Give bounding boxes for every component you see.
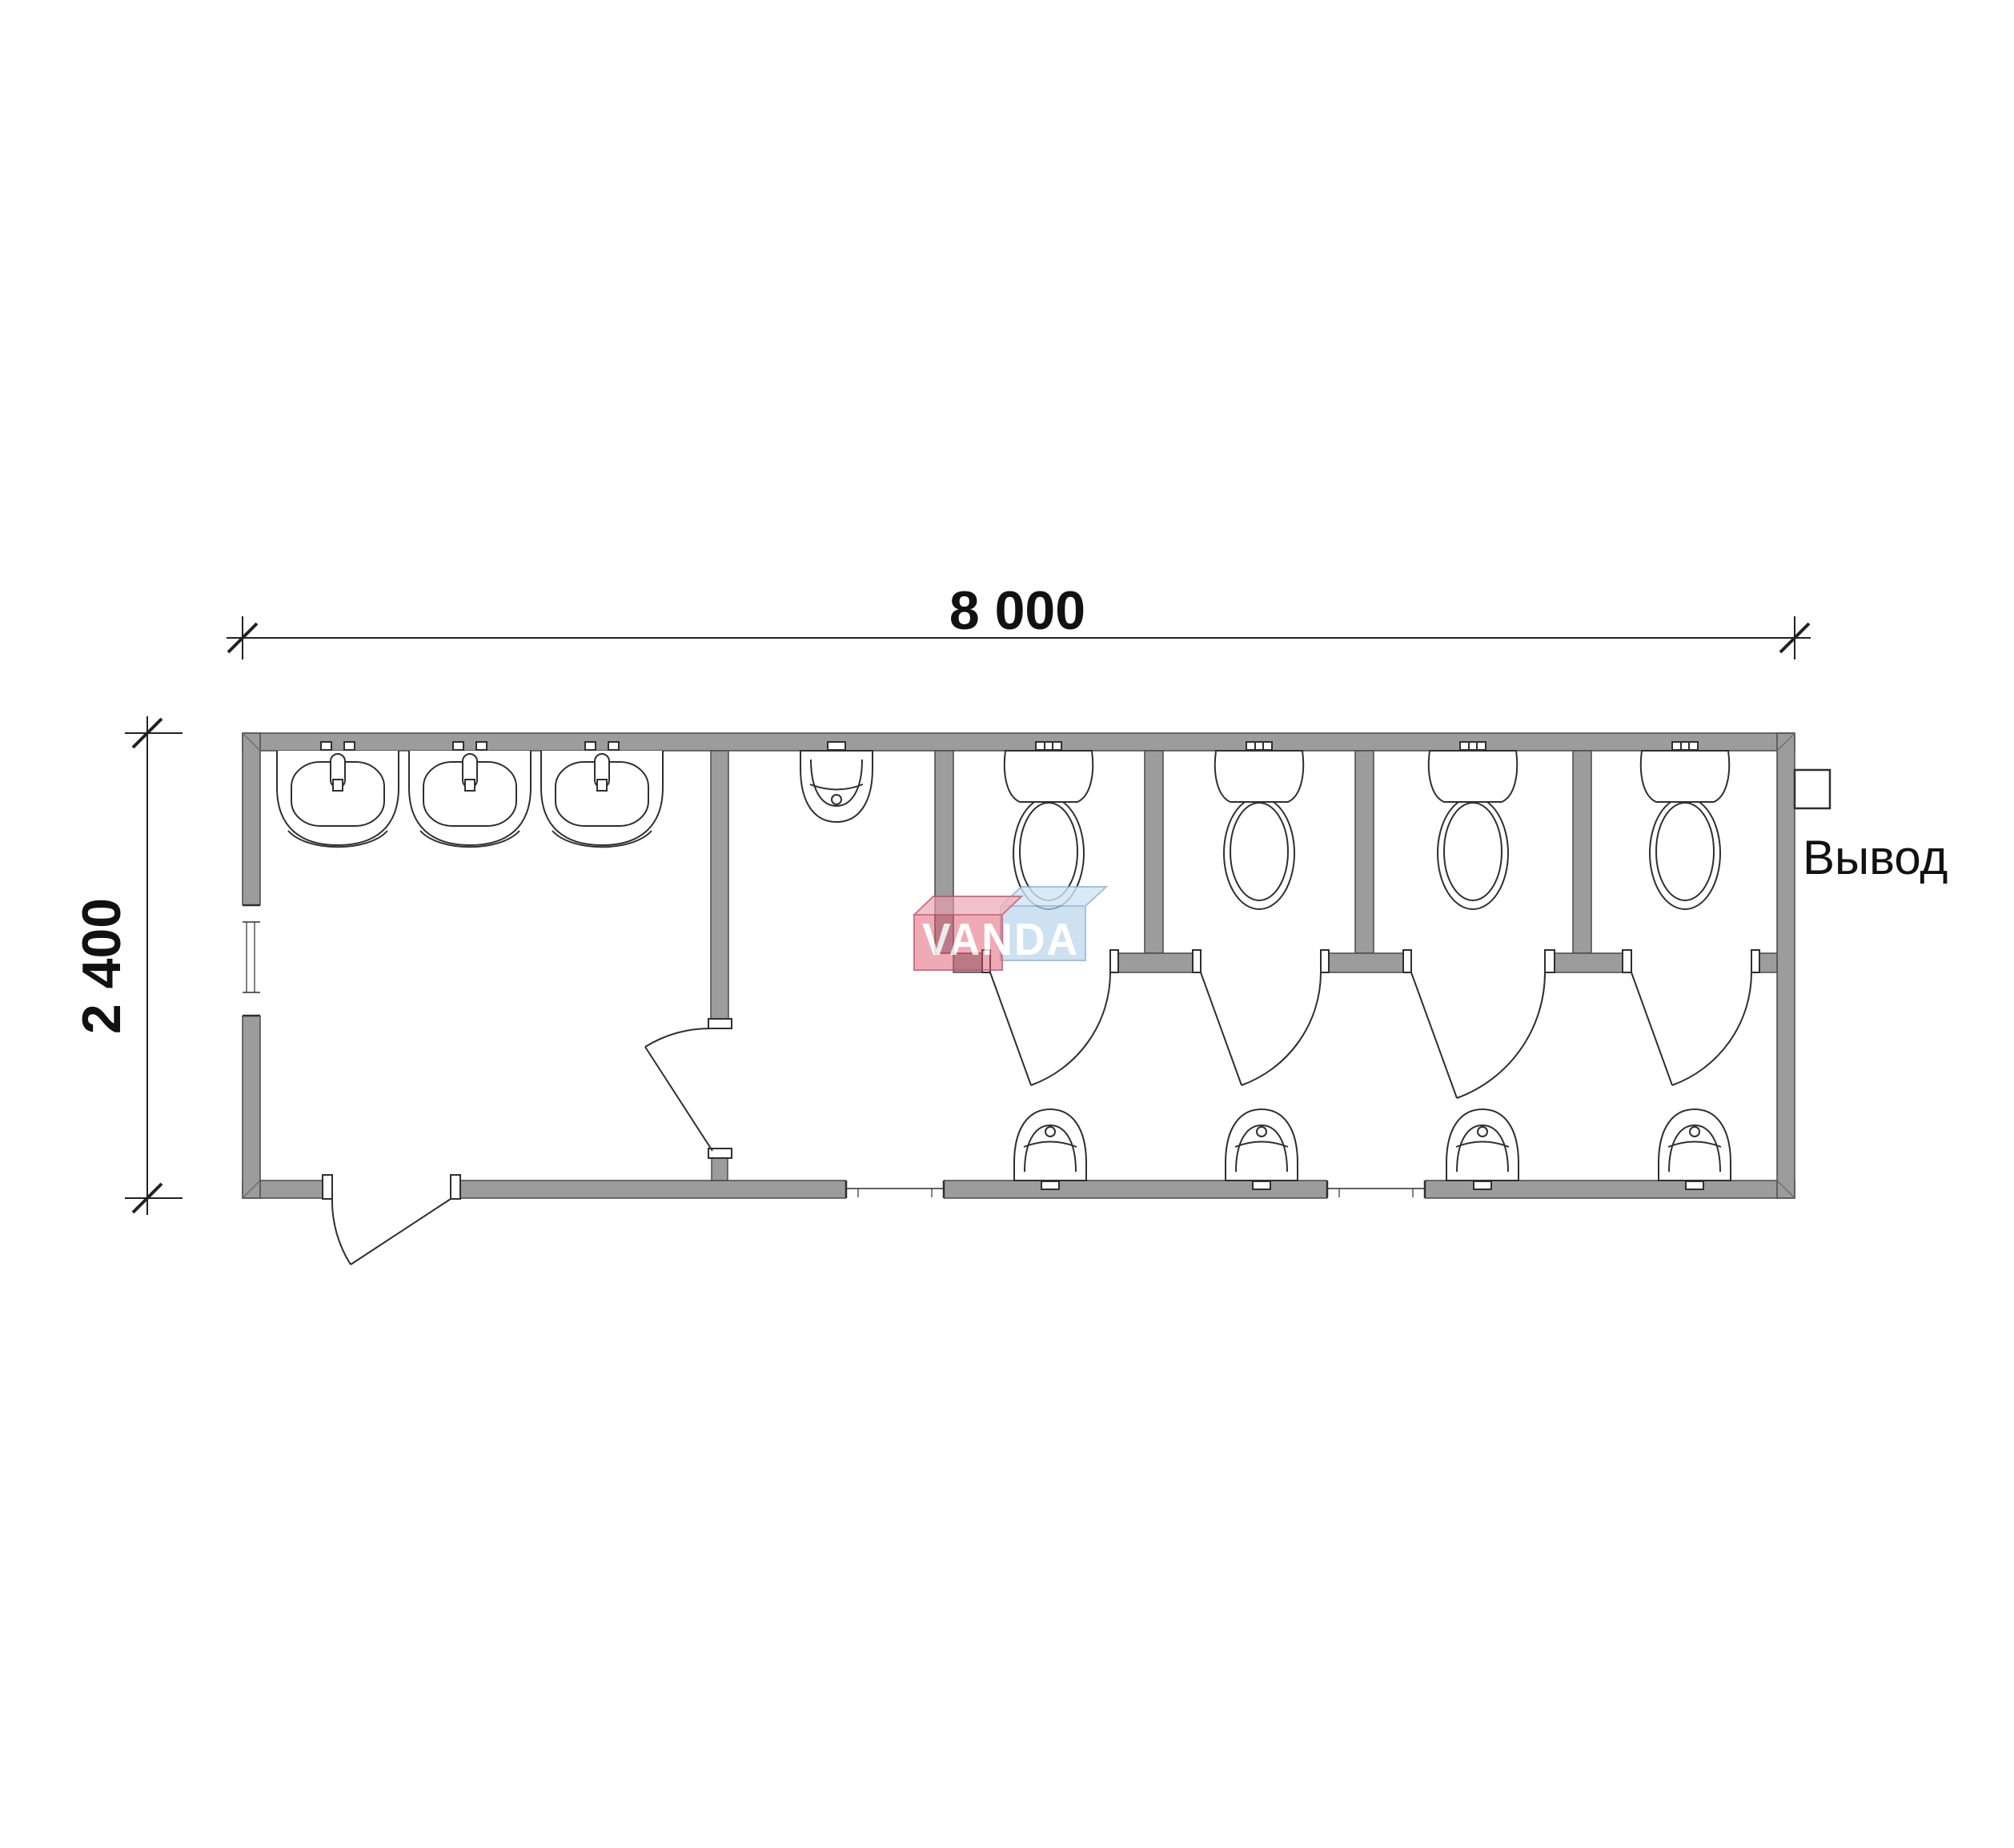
door-stall-2	[1201, 972, 1321, 1085]
floor-plan-page: 8 000 2 400	[0, 0, 2014, 1848]
stall-front-stub-4	[1555, 953, 1623, 972]
window-bottom-2	[1327, 1179, 1425, 1200]
entrance-opening	[332, 1179, 451, 1200]
watermark-red-top-face	[914, 896, 1021, 915]
jamb-stall3-right	[1545, 950, 1555, 972]
window-left-wall	[241, 905, 262, 1016]
floor-plan-drawing: 8 000 2 400	[0, 0, 2014, 1848]
door-stall-1	[990, 972, 1110, 1085]
dim-width-label: 8 000	[949, 580, 1085, 641]
stall-front-stub-3	[1329, 953, 1403, 972]
toilet-icon-3	[1429, 742, 1517, 909]
watermark-text: VANDA	[922, 914, 1079, 965]
toilet-icon-2	[1215, 742, 1303, 909]
outlet-label: Вывод	[1803, 831, 1948, 884]
sink-icon-1	[277, 742, 399, 847]
dimension-height: 2 400	[71, 716, 183, 1215]
door-entrance	[332, 1199, 451, 1265]
partition-washroom	[711, 751, 728, 1019]
corridor-urinal-icon-2	[1226, 1109, 1298, 1189]
jamb-stall4-right	[1751, 950, 1759, 972]
jamb-stall2-right	[1321, 950, 1329, 972]
wall-urinal-icon	[800, 742, 873, 822]
corridor-urinal-icon-1	[1014, 1109, 1086, 1189]
partition-stall-3	[1355, 751, 1374, 953]
jamb-washroom-top	[708, 1019, 732, 1028]
outlet-box	[1795, 770, 1830, 808]
fixtures	[277, 742, 1731, 1189]
jamb-entrance-right	[451, 1175, 460, 1199]
jamb-stall3-left	[1403, 950, 1411, 972]
wall-top	[243, 733, 1795, 751]
corridor-urinal-icon-4	[1659, 1109, 1731, 1189]
sink-icon-2	[409, 742, 531, 847]
jamb-stall1-right	[1110, 950, 1118, 972]
partition-washroom-stub	[712, 1158, 728, 1181]
dimension-width: 8 000	[227, 580, 1811, 659]
door-washroom	[645, 1028, 712, 1151]
partition-stall-2	[1145, 751, 1163, 953]
vanda-watermark: VANDA	[914, 887, 1106, 970]
jamb-stall2-left	[1193, 950, 1201, 972]
door-stall-4	[1631, 972, 1751, 1085]
window-bottom-1	[846, 1179, 944, 1200]
sink-icon-3	[541, 742, 663, 847]
door-stall-3	[1411, 972, 1545, 1098]
stall-front-stub-right	[1759, 953, 1777, 972]
utility-outlet: Вывод	[1795, 770, 1948, 884]
toilet-icon-4	[1641, 742, 1729, 909]
jamb-stall4-left	[1623, 950, 1631, 972]
dim-height-label: 2 400	[71, 898, 132, 1034]
toilet-icon-1	[1005, 742, 1093, 909]
stall-front-stub-2	[1118, 953, 1193, 972]
corridor-urinal-icon-3	[1446, 1109, 1519, 1189]
partition-stall-4	[1573, 751, 1591, 953]
wall-bottom	[243, 1181, 1795, 1198]
jamb-entrance-left	[323, 1175, 332, 1199]
wall-right	[1777, 733, 1795, 1198]
